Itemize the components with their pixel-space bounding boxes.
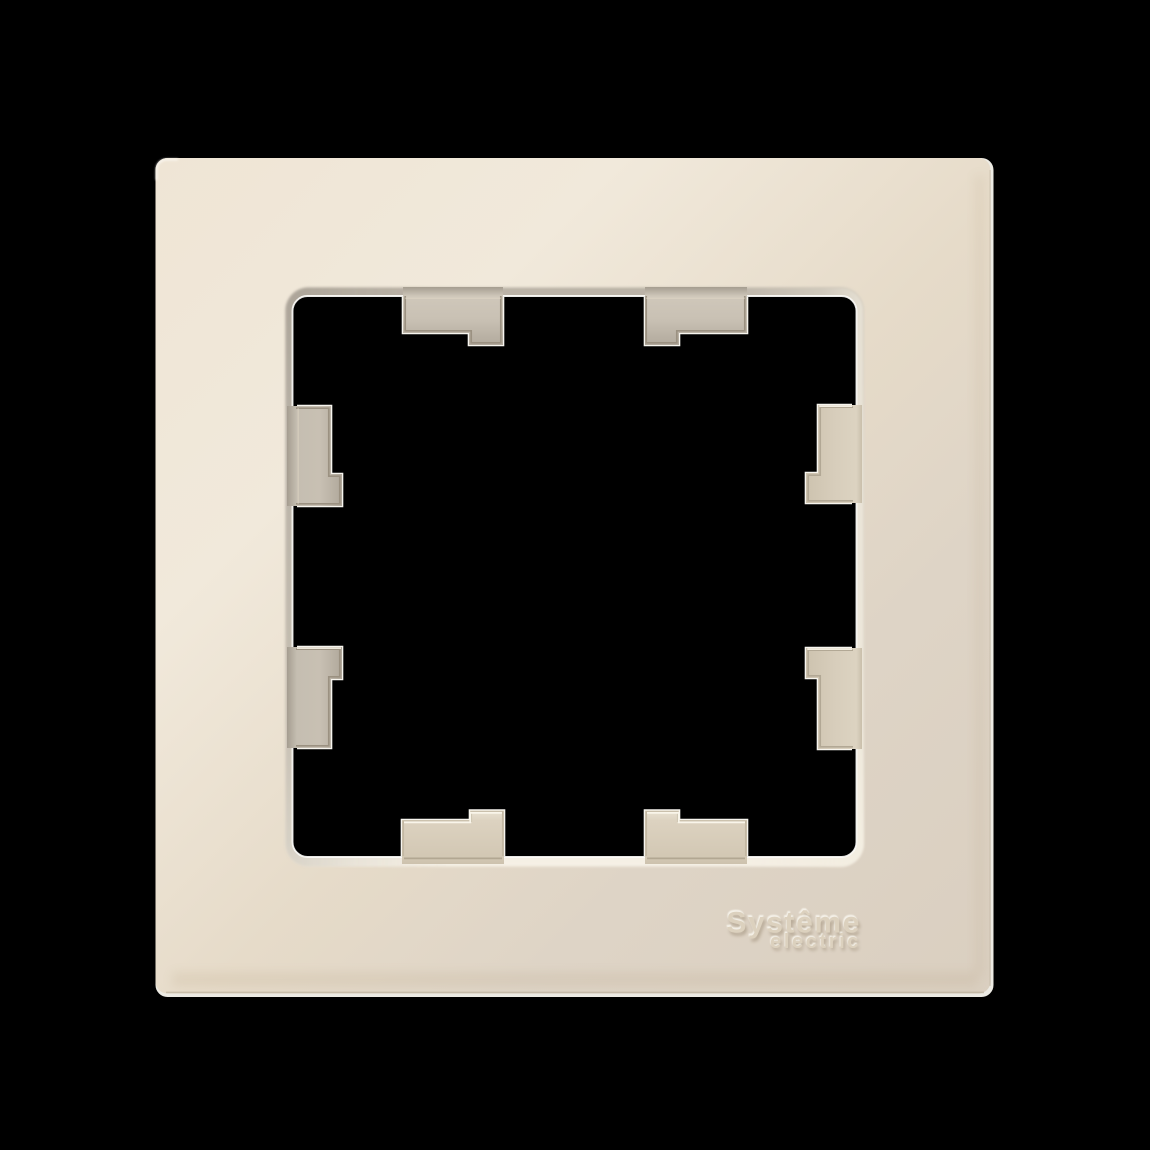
svg-text:electric: electric [770, 931, 861, 953]
